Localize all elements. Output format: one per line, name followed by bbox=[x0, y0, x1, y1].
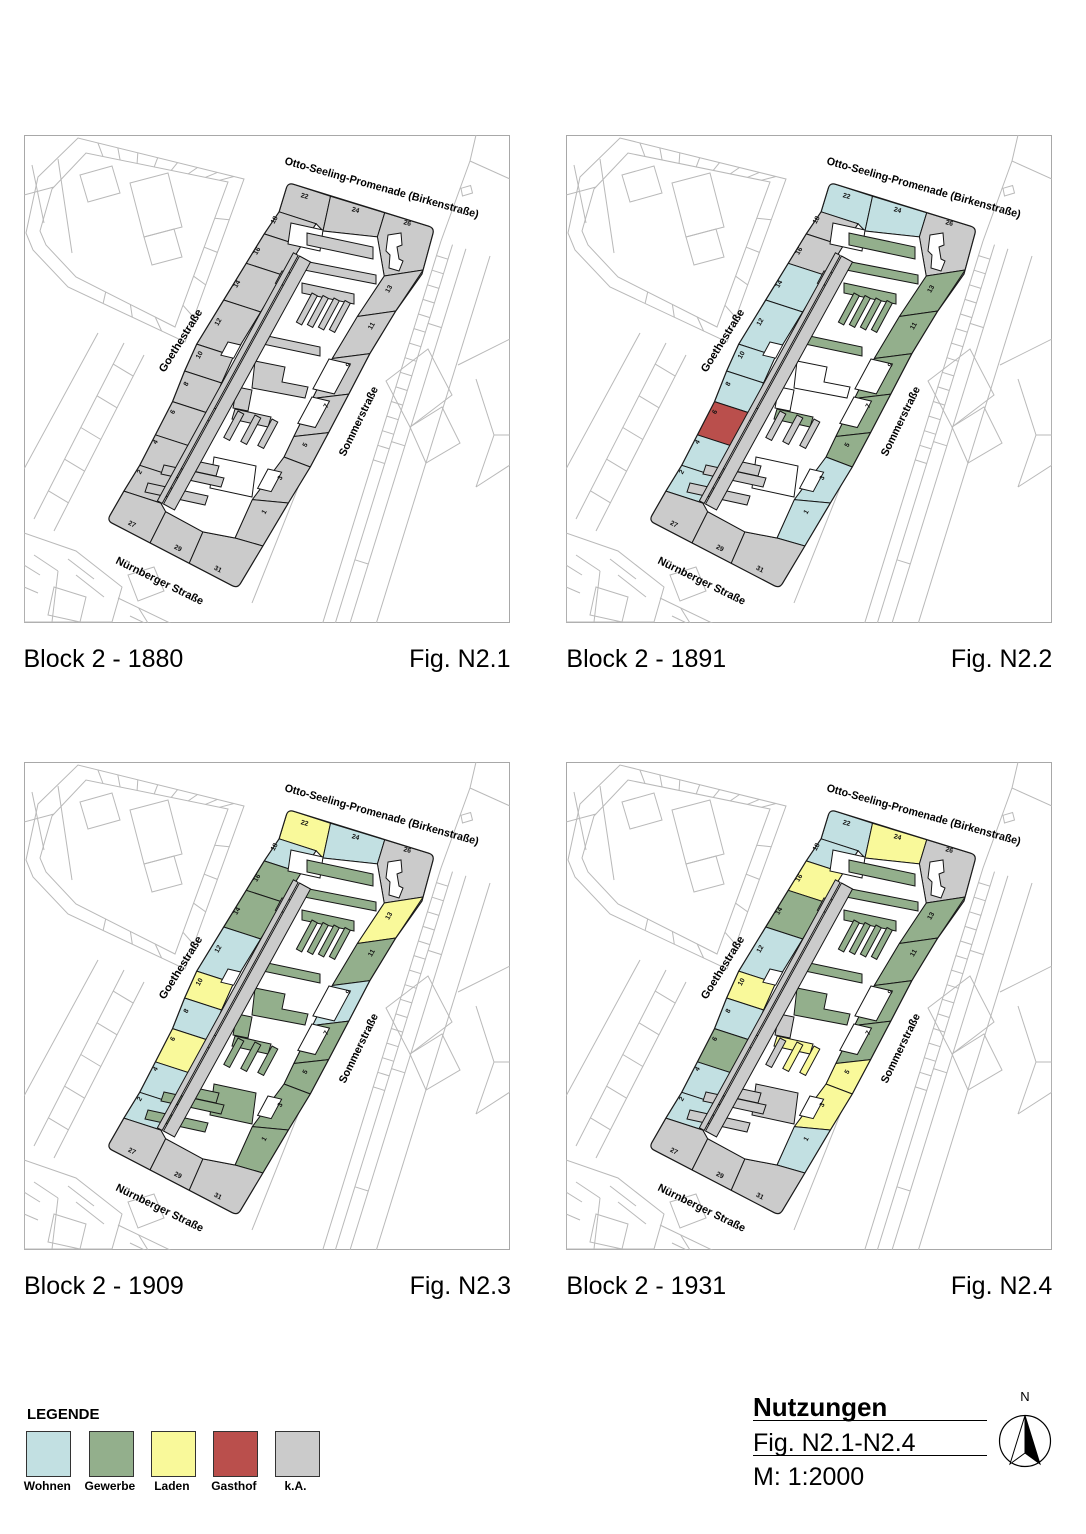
svg-text:N: N bbox=[1020, 1389, 1029, 1404]
